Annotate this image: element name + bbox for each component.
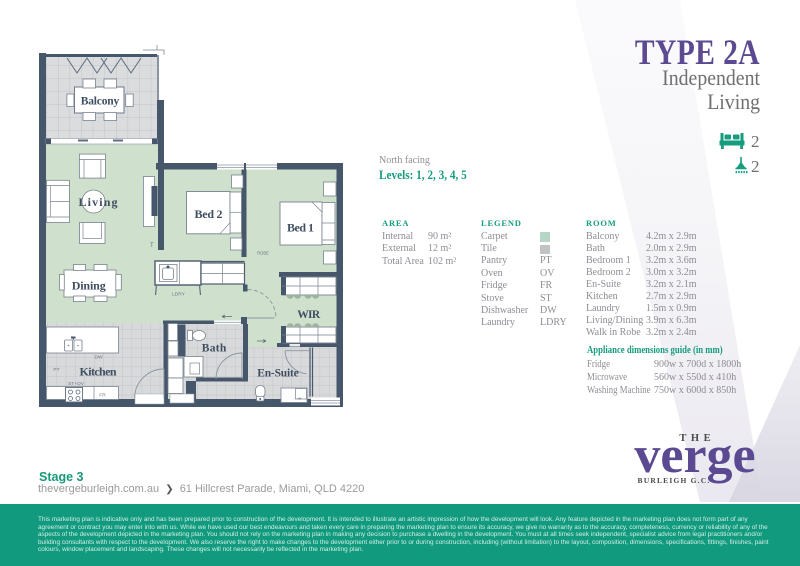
- svg-text:WIR: WIR: [297, 309, 321, 321]
- svg-text:PT: PT: [53, 367, 59, 373]
- svg-text:Bed 2: Bed 2: [195, 207, 223, 221]
- svg-text:Kitchen: Kitchen: [80, 364, 117, 378]
- svg-text:FR: FR: [99, 393, 106, 399]
- svg-text:Dining: Dining: [72, 279, 106, 293]
- svg-text:LDRY: LDRY: [172, 292, 186, 298]
- svg-text:ROBE: ROBE: [257, 251, 269, 256]
- svg-text:Living: Living: [79, 195, 118, 209]
- svg-text:En-Suite: En-Suite: [257, 367, 299, 379]
- svg-text:Bed 1: Bed 1: [287, 221, 314, 235]
- svg-text:T: T: [150, 243, 154, 249]
- svg-text:Bath: Bath: [202, 343, 227, 355]
- svg-text:Balcony: Balcony: [81, 95, 120, 107]
- svg-text:DW: DW: [95, 355, 103, 361]
- svg-text:ST+OV: ST+OV: [68, 381, 85, 387]
